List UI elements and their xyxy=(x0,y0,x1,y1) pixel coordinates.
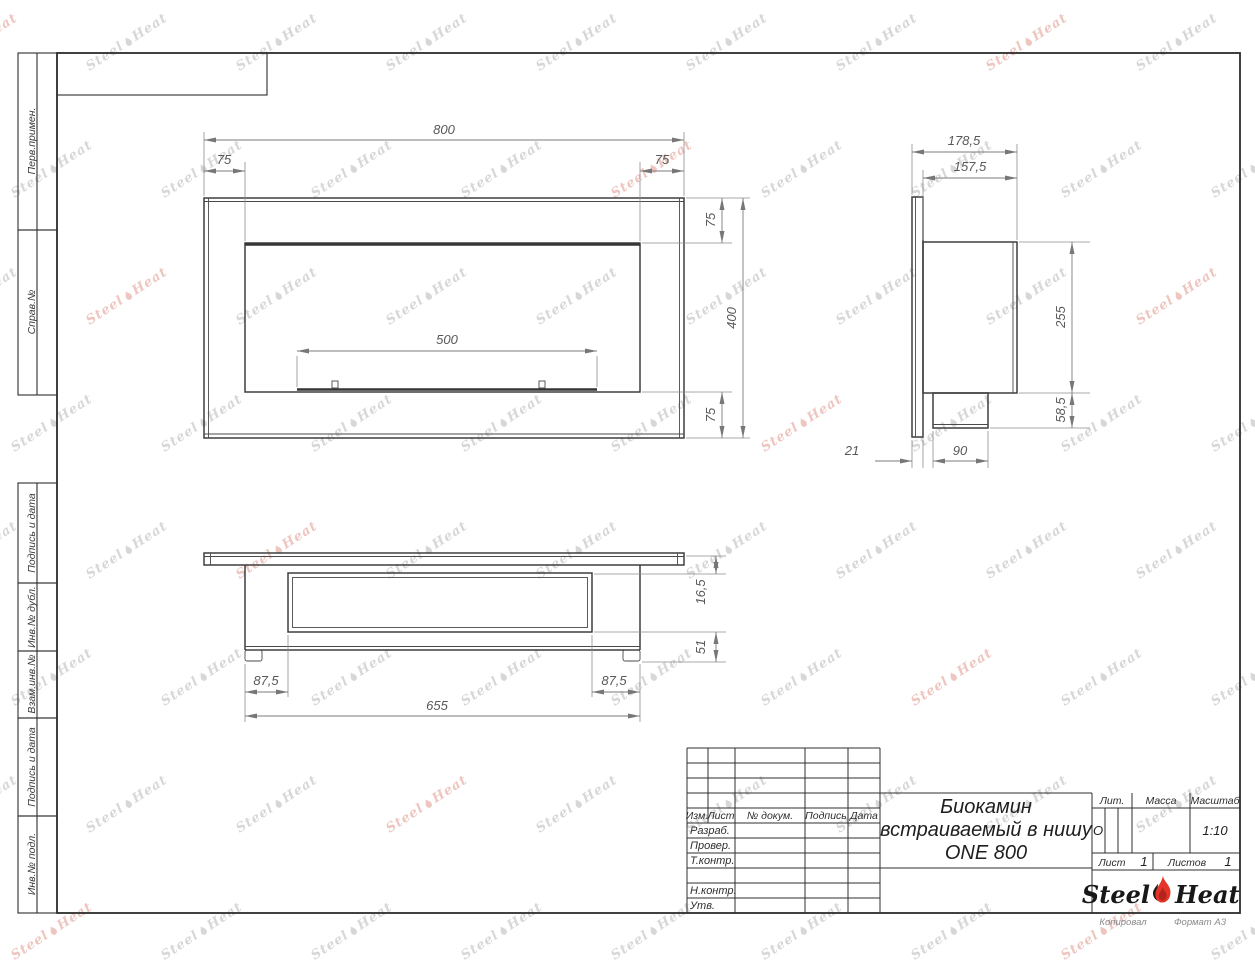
margin-label: Инв.№ подл. xyxy=(26,833,38,895)
dim-front-top-margin: 75 xyxy=(703,212,718,227)
front-view: 800 75 75 75 400 75 500 xyxy=(204,122,750,438)
side-view: 178,5 157,5 255 58,5 21 90 xyxy=(844,133,1090,468)
margin-label: Перв.примен. xyxy=(26,108,38,175)
dim-side-body-depth: 157,5 xyxy=(954,159,987,174)
title-block: Изм. Лист № докум. Подпись Дата Разраб. … xyxy=(686,748,1241,913)
logo-text-heat: Heat xyxy=(1174,880,1240,909)
col-list: Лист xyxy=(706,810,734,822)
copied-label: Копировал xyxy=(1099,917,1147,928)
sheets-total-value: 1 xyxy=(1224,854,1231,869)
dim-bottom-flange-offset: 16,5 xyxy=(693,579,708,605)
top-left-stamp-box xyxy=(57,53,267,95)
body xyxy=(923,242,1017,393)
burner-opening xyxy=(288,573,592,632)
row-razrab: Разраб. xyxy=(690,825,730,837)
flange-plate xyxy=(204,553,684,565)
sheet-no-label: Лист xyxy=(1097,857,1125,869)
doc-title-line2: встраиваемый в нишу xyxy=(880,819,1093,841)
margin-label: Подпись и дата xyxy=(26,493,38,573)
dim-bottom-body-width: 655 xyxy=(426,698,448,713)
col-podpis: Подпись xyxy=(805,810,847,822)
lit-label: Лит. xyxy=(1099,795,1125,807)
dim-front-bottom-margin: 75 xyxy=(703,407,718,422)
dim-bottom-right-inset: 87,5 xyxy=(601,673,627,688)
lit-value: О xyxy=(1093,823,1103,838)
scale-label: Масштаб xyxy=(1190,795,1240,807)
left-margin-boxes: Перв.примен. Справ.№ Подпись и дата Инв.… xyxy=(18,53,57,913)
mass-label: Масса xyxy=(1145,795,1176,807)
sheet-no-value: 1 xyxy=(1140,854,1147,869)
dim-side-flange-thickness: 21 xyxy=(844,443,859,458)
dim-side-burner-depth: 90 xyxy=(953,443,968,458)
dim-front-left-margin: 75 xyxy=(217,152,232,167)
technical-drawing: Перв.примен. Справ.№ Подпись и дата Инв.… xyxy=(0,0,1255,970)
sheet-frame xyxy=(57,53,1240,913)
niche-opening xyxy=(245,243,640,392)
row-utv: Утв. xyxy=(689,900,715,912)
dim-front-height: 400 xyxy=(724,306,739,328)
margin-label: Подпись и дата xyxy=(26,727,38,807)
foot xyxy=(623,650,640,661)
scale-value: 1:10 xyxy=(1202,823,1228,838)
logo-text-steel: Steel xyxy=(1082,880,1150,909)
sheets-total-label: Листов xyxy=(1167,857,1207,869)
format-label: Формат А3 xyxy=(1174,917,1227,928)
dim-front-burner-width: 500 xyxy=(436,332,458,347)
dim-front-right-margin: 75 xyxy=(655,152,670,167)
col-izm: Изм. xyxy=(686,810,708,822)
dim-bottom-lower-height: 51 xyxy=(693,640,708,654)
dim-bottom-left-inset: 87,5 xyxy=(253,673,279,688)
doc-title-line3: ONE 800 xyxy=(945,842,1027,864)
margin-label: Взам.инв.№ xyxy=(26,654,38,713)
dim-front-total-width: 800 xyxy=(433,122,455,137)
doc-title-line1: Биокамин xyxy=(940,796,1032,818)
bottom-view: 16,5 51 87,5 87,5 655 xyxy=(204,553,726,722)
row-prover: Провер. xyxy=(690,840,731,852)
dim-side-body-height: 255 xyxy=(1053,305,1068,328)
col-data: Дата xyxy=(849,810,878,822)
margin-label: Справ.№ xyxy=(26,290,38,335)
flame-icon xyxy=(1153,876,1170,903)
steelheat-logo: Steel Heat xyxy=(1082,876,1240,909)
burner-box xyxy=(933,393,988,428)
row-tkontr: Т.контр. xyxy=(690,855,734,867)
flange xyxy=(912,197,923,437)
dim-side-burner-height: 58,5 xyxy=(1053,397,1068,423)
col-ndokum: № докум. xyxy=(747,810,793,822)
dim-side-total-depth: 178,5 xyxy=(948,133,981,148)
drawing-sheet: SteelHeatSteelHeatSteelHeatSteelHeatStee… xyxy=(0,0,1255,970)
foot xyxy=(245,650,262,661)
margin-label: Инв.№ дубл. xyxy=(26,586,38,648)
row-nkontr: Н.контр. xyxy=(690,885,737,897)
